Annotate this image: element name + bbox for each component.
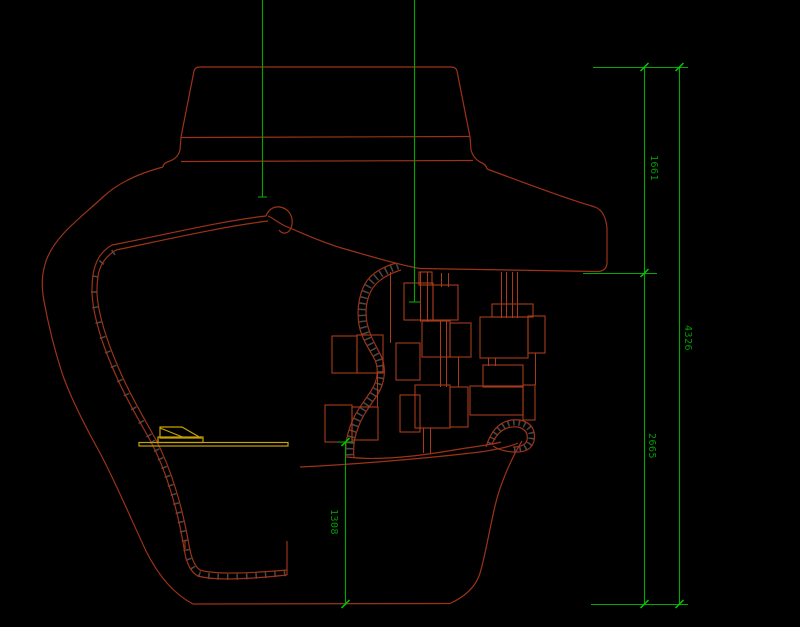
dim-label-1661: 1661 — [648, 155, 659, 181]
cad-drawing: 1661 4326 2665 1308 — [0, 0, 800, 627]
dim-label-1308: 1308 — [328, 509, 339, 535]
dim-label-4326: 4326 — [682, 325, 693, 351]
dim-label-2665: 2665 — [646, 433, 657, 459]
cad-canvas[interactable]: 1661 4326 2665 1308 — [0, 0, 800, 627]
